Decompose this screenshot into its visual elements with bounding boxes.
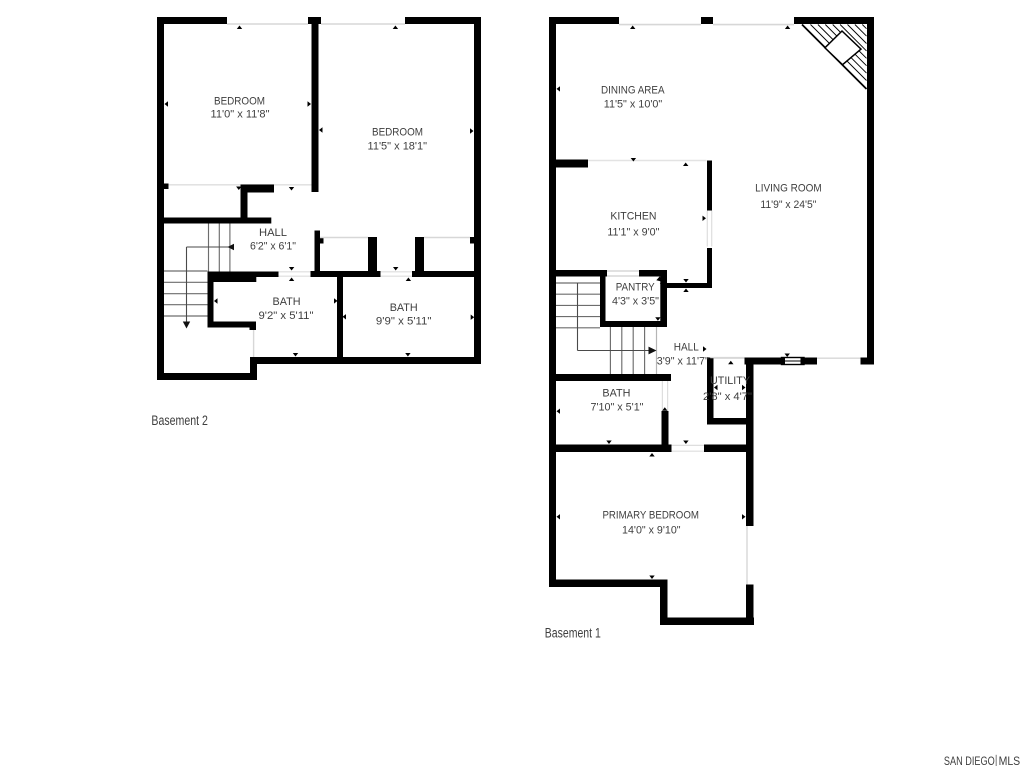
svg-text:11'0" x 11'8": 11'0" x 11'8" (211, 109, 270, 121)
svg-text:BEDROOM: BEDROOM (214, 96, 265, 108)
svg-text:DINING AREA: DINING AREA (601, 84, 665, 96)
svg-text:BATH: BATH (273, 296, 301, 308)
svg-text:4'3" x 3'5": 4'3" x 3'5" (612, 296, 659, 308)
svg-text:BATH: BATH (602, 388, 630, 400)
svg-text:KITCHEN: KITCHEN (610, 210, 656, 222)
svg-text:9'2" x 5'11": 9'2" x 5'11" (259, 310, 314, 322)
svg-text:BATH: BATH (390, 302, 418, 314)
svg-text:2'8" x 4'7": 2'8" x 4'7" (703, 391, 752, 403)
svg-text:HALL: HALL (674, 341, 699, 353)
svg-text:BEDROOM: BEDROOM (372, 127, 423, 139)
svg-text:LIVING ROOM: LIVING ROOM (755, 183, 822, 195)
svg-text:7'10" x 5'1": 7'10" x 5'1" (591, 402, 644, 414)
svg-text:14'0" x 9'10": 14'0" x 9'10" (622, 525, 681, 537)
svg-text:3'9" x 11'7": 3'9" x 11'7" (657, 355, 709, 367)
svg-text:11'5" x 10'0": 11'5" x 10'0" (604, 99, 663, 111)
svg-text:9'9" x 5'11": 9'9" x 5'11" (376, 316, 432, 328)
svg-text:Basement 2: Basement 2 (151, 413, 208, 428)
svg-text:PANTRY: PANTRY (616, 282, 656, 294)
svg-text:11'5" x 18'1": 11'5" x 18'1" (368, 140, 428, 152)
svg-text:MLS: MLS (999, 754, 1021, 768)
svg-text:SAN DIEGO: SAN DIEGO (944, 754, 995, 768)
svg-text:11'1" x 9'0": 11'1" x 9'0" (607, 227, 659, 239)
svg-text:11'9" x 24'5": 11'9" x 24'5" (760, 199, 816, 211)
svg-text:Basement 1: Basement 1 (545, 625, 601, 640)
svg-text:UTILITY: UTILITY (710, 375, 751, 387)
svg-text:PRIMARY BEDROOM: PRIMARY BEDROOM (602, 510, 699, 522)
svg-text:HALL: HALL (259, 227, 287, 239)
svg-text:6'2" x 6'1": 6'2" x 6'1" (250, 241, 296, 253)
